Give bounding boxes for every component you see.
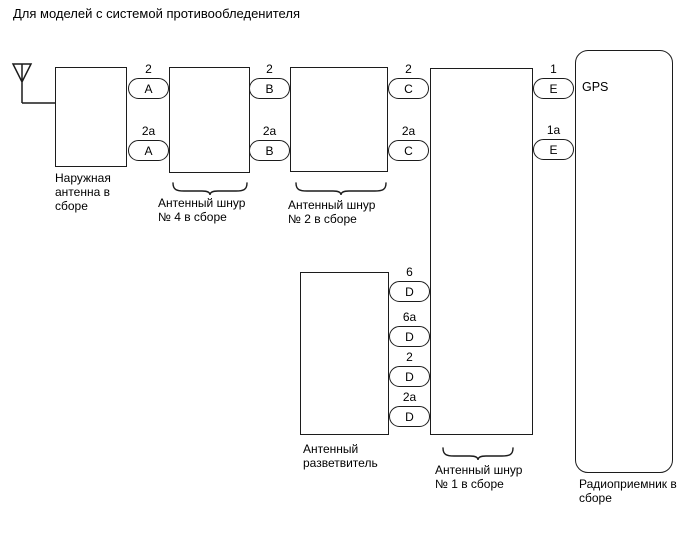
label-line: Наружная <box>55 171 111 185</box>
pin-number: 2a <box>379 390 440 406</box>
connector-letter: B <box>265 82 273 96</box>
connector-letter: D <box>405 410 414 424</box>
label-antenna-cord-2: Антенный шнур № 2 в сборе <box>288 198 375 226</box>
label-line: антенна в <box>55 185 111 199</box>
box-antenna-cord-1 <box>430 68 533 435</box>
label-line: Антенный шнур <box>158 196 245 210</box>
connector-letter: C <box>404 144 413 158</box>
label-line: Радиоприемник в <box>579 477 677 491</box>
connector-letter: E <box>549 82 557 96</box>
box-antenna-cord-2 <box>290 67 388 172</box>
connector-c-pin-2: 2 C <box>388 78 429 99</box>
connector-a-pin-2: 2 A <box>128 78 169 99</box>
connector-oval: E <box>533 78 574 99</box>
pin-number: 2 <box>239 62 300 78</box>
box-outdoor-antenna <box>55 67 127 167</box>
connector-b-pin-2a: 2a B <box>249 140 290 161</box>
label-line: Антенный шнур <box>288 198 375 212</box>
connector-oval: D <box>389 326 430 347</box>
connector-e-pin-1a: 1a E <box>533 139 574 160</box>
wiring-diagram: Для моделей с системой противообледените… <box>0 0 688 560</box>
connector-letter: D <box>405 330 414 344</box>
curly-brace-cord2 <box>295 182 387 197</box>
pin-number: 2 <box>118 62 179 78</box>
label-antenna-cord-4: Антенный шнур № 4 в сборе <box>158 196 245 224</box>
connector-oval: B <box>249 78 290 99</box>
connector-letter: E <box>549 143 557 157</box>
diagram-title: Для моделей с системой противообледените… <box>13 6 300 21</box>
connector-oval: C <box>388 78 429 99</box>
gps-label: GPS <box>582 80 608 94</box>
label-antenna-cord-1: Антенный шнур № 1 в сборе <box>435 463 522 491</box>
connector-letter: C <box>404 82 413 96</box>
connector-c-pin-2a: 2a C <box>388 140 429 161</box>
curly-brace-cord1 <box>442 447 514 462</box>
pin-number: 2 <box>378 62 439 78</box>
box-antenna-splitter <box>300 272 389 435</box>
connector-a-pin-2a: 2a A <box>128 140 169 161</box>
label-line: № 2 в сборе <box>288 212 375 226</box>
connector-letter: B <box>265 144 273 158</box>
label-antenna-splitter: Антенный разветвитель <box>303 442 378 470</box>
label-line: сборе <box>579 491 677 505</box>
pin-number: 2a <box>378 124 439 140</box>
label-line: Антенный шнур <box>435 463 522 477</box>
connector-oval: B <box>249 140 290 161</box>
connector-d-pin-2a: 2a D <box>389 406 430 427</box>
pin-number: 1 <box>523 62 584 78</box>
connector-d-pin-2: 2 D <box>389 366 430 387</box>
connector-d-pin-6a: 6a D <box>389 326 430 347</box>
pin-number: 2a <box>239 124 300 140</box>
pin-number: 6 <box>379 265 440 281</box>
box-radio-receiver <box>575 50 673 473</box>
pin-number: 1a <box>523 123 584 139</box>
label-line: № 4 в сборе <box>158 210 245 224</box>
label-line: разветвитель <box>303 456 378 470</box>
connector-letter: A <box>144 144 152 158</box>
box-antenna-cord-4 <box>169 67 250 173</box>
connector-oval: D <box>389 366 430 387</box>
antenna-icon <box>6 60 58 106</box>
pin-number: 6a <box>379 310 440 326</box>
connector-b-pin-2: 2 B <box>249 78 290 99</box>
connector-oval: C <box>388 140 429 161</box>
connector-letter: D <box>405 285 414 299</box>
connector-oval: A <box>128 140 169 161</box>
pin-number: 2a <box>118 124 179 140</box>
label-line: Антенный <box>303 442 378 456</box>
connector-e-pin-1: 1 E <box>533 78 574 99</box>
connector-oval: A <box>128 78 169 99</box>
curly-brace-cord4 <box>172 182 248 197</box>
label-outdoor-antenna: Наружная антенна в сборе <box>55 171 111 213</box>
connector-letter: D <box>405 370 414 384</box>
connector-oval: D <box>389 406 430 427</box>
connector-letter: A <box>144 82 152 96</box>
connector-d-pin-6: 6 D <box>389 281 430 302</box>
connector-oval: E <box>533 139 574 160</box>
connector-oval: D <box>389 281 430 302</box>
pin-number: 2 <box>379 350 440 366</box>
label-line: № 1 в сборе <box>435 477 522 491</box>
label-line: сборе <box>55 199 111 213</box>
label-radio-receiver: Радиоприемник в сборе <box>579 477 677 505</box>
